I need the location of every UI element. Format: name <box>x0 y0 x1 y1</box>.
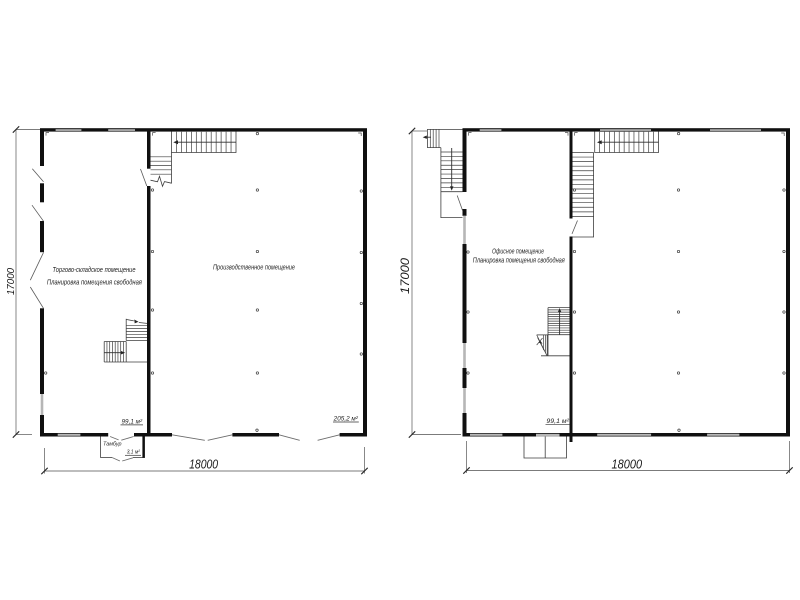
svg-text:18000: 18000 <box>189 456 219 471</box>
svg-text:17000: 17000 <box>5 268 17 295</box>
svg-text:Планировка помещения свободная: Планировка помещения свободная <box>473 256 565 264</box>
svg-text:18000: 18000 <box>612 457 643 472</box>
svg-text:Производственное помещение: Производственное помещение <box>213 263 295 271</box>
svg-text:99,1 м²: 99,1 м² <box>122 418 143 425</box>
svg-text:Офисное помещение: Офисное помещение <box>492 248 544 255</box>
svg-text:205,2 м²: 205,2 м² <box>333 415 359 422</box>
svg-text:3,1 м²: 3,1 м² <box>127 449 141 455</box>
svg-text:Торгово-складское помещение: Торгово-складское помещение <box>53 266 136 274</box>
svg-text:17000: 17000 <box>398 258 412 294</box>
svg-text:Планировка помещения свободная: Планировка помещения свободная <box>47 278 142 286</box>
svg-text:99,1 м²: 99,1 м² <box>546 418 569 425</box>
svg-text:Тамбур: Тамбур <box>103 442 122 448</box>
